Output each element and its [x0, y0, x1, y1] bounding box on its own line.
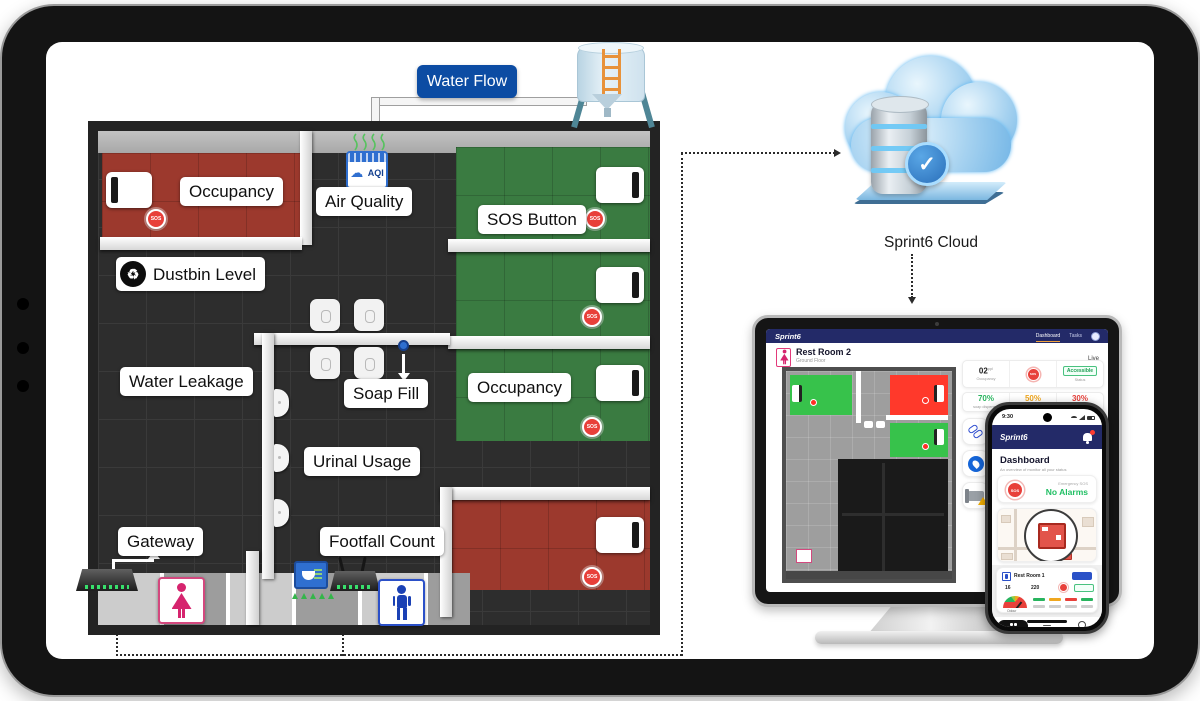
illustration-canvas: SOS Occupancy ☁ AQI Air Quality SOS Butt…	[0, 0, 1200, 701]
odour-gauge	[1003, 596, 1027, 608]
mini-toilet	[792, 385, 802, 402]
nav-dashboard[interactable]: Dashboard	[1036, 333, 1060, 342]
gateway-device-icon	[76, 569, 138, 589]
room-card-title: Rest Room 1	[1014, 573, 1045, 579]
status-time: 9:30	[1002, 414, 1013, 420]
phone-screen: 9:30 Sprint6 Dashboard An overview of mo…	[992, 409, 1102, 627]
mini-sink	[864, 421, 873, 428]
mini-dark-zone	[838, 459, 948, 575]
partition	[448, 336, 650, 349]
label-occupancy-women: Occupancy	[180, 177, 283, 206]
mini-wall	[856, 371, 861, 423]
stat-bar	[1049, 605, 1061, 608]
sink-icon	[354, 299, 384, 331]
restroom-floorplan: SOS Occupancy ☁ AQI Air Quality SOS Butt…	[88, 121, 660, 635]
mini-sos-dot	[922, 397, 929, 404]
stat-bar	[1065, 605, 1077, 608]
home-indicator[interactable]	[1027, 620, 1067, 623]
recycle-icon: ♻	[120, 261, 146, 287]
connector	[911, 254, 913, 298]
sink-icon	[310, 299, 340, 331]
partition	[100, 237, 302, 250]
label-air-quality: Air Quality	[316, 187, 412, 216]
page-subtitle: An overview of monitor all your status	[1000, 467, 1066, 472]
female-figure-icon	[170, 583, 194, 618]
sos-button-icon: SOS	[585, 209, 605, 229]
stat-bar	[1065, 598, 1077, 601]
mini-women-sign	[796, 549, 812, 563]
toilet-icon	[596, 517, 644, 553]
view-floor-button[interactable]	[1072, 572, 1092, 580]
toilet-icon	[106, 172, 152, 208]
male-figure-icon	[390, 585, 414, 620]
mini-sink	[876, 421, 885, 428]
check-badge-icon: ✓	[905, 142, 949, 186]
toilet-icon	[596, 167, 644, 203]
status-icons	[1071, 415, 1095, 420]
aqi-text: AQI	[368, 168, 384, 178]
tab-dashboard[interactable]	[998, 620, 1028, 627]
stats-card: 02ppl Occupancy SOS Accessible Status	[962, 360, 1104, 388]
avatar[interactable]	[1091, 332, 1100, 341]
label-gateway: Gateway	[118, 527, 203, 556]
grid-icon	[1010, 623, 1017, 628]
router-device-icon	[330, 571, 380, 589]
brand-logo: Sprint6	[1000, 433, 1028, 442]
water-flow-badge: Water Flow	[417, 65, 517, 98]
mobile-phone: 9:30 Sprint6 Dashboard An overview of mo…	[985, 402, 1109, 634]
room-stat-2: 220	[1031, 585, 1039, 591]
label-footfall-count: Footfall Count	[320, 527, 444, 556]
dashboard-nav: Dashboard Tasks	[1036, 333, 1082, 342]
sink-icon	[354, 347, 384, 379]
steam-icon	[350, 133, 390, 151]
notification-bell-icon[interactable]	[1083, 433, 1092, 441]
sos-icon[interactable]: SOS	[1006, 481, 1024, 499]
wall	[246, 551, 259, 625]
women-restroom-sign	[158, 577, 205, 624]
stat-bar	[1081, 605, 1093, 608]
label-water-leakage: Water Leakage	[120, 367, 253, 396]
water-pipe	[371, 97, 587, 106]
sprint6-cloud-icon: ✓	[845, 56, 1017, 234]
partition	[448, 239, 650, 252]
flush-sensor-icon	[294, 561, 328, 589]
emergency-card: SOS Emergency SOS No Alarms	[997, 475, 1097, 503]
mini-sos-dot	[922, 443, 929, 450]
room-title: Rest Room 2	[796, 347, 851, 357]
status-pill	[1074, 584, 1094, 592]
connector	[116, 654, 682, 656]
room-stat-1: 16	[1005, 585, 1011, 591]
gauge-label: Odour	[1007, 609, 1016, 613]
sink-counter-wall	[254, 333, 450, 345]
label-urinal-usage: Urinal Usage	[304, 447, 420, 476]
wifi-icon	[1071, 416, 1077, 420]
mini-toilet	[934, 429, 944, 445]
tablet-camera-dot	[17, 298, 29, 310]
arrow	[112, 559, 154, 562]
stat-bar	[1033, 605, 1045, 608]
webcam-icon	[935, 322, 939, 326]
sink-icon	[310, 347, 340, 379]
partition	[440, 487, 650, 500]
room-floor: Ground Floor	[796, 358, 825, 364]
mini-partition	[842, 513, 944, 516]
label-sos-button: SOS Button	[478, 205, 586, 234]
toilet-icon	[596, 365, 644, 401]
water-tank-icon	[574, 40, 652, 128]
tablet-camera-dot	[17, 380, 29, 392]
sos-button-icon: SOS	[582, 417, 602, 437]
stat-bar	[1033, 598, 1045, 601]
connector	[681, 153, 683, 656]
dashboard-header: Sprint6 Dashboard Tasks	[766, 329, 1108, 343]
mini-floorplan	[782, 367, 956, 583]
connector	[681, 152, 835, 154]
map-magnifier	[1024, 509, 1078, 562]
battery-icon	[1087, 416, 1095, 421]
phone-header: Sprint6	[992, 425, 1102, 449]
mini-toilet	[934, 385, 944, 402]
signal-icon	[1079, 415, 1085, 420]
camera-punch-hole	[1043, 413, 1052, 422]
emergency-label: Emergency SOS	[1058, 481, 1088, 486]
mini-sos-dot	[810, 399, 817, 406]
flow-arrows-icon	[292, 593, 334, 599]
mini-partition	[886, 415, 948, 420]
restroom-type-icon	[776, 348, 791, 367]
sos-dot-icon	[1059, 583, 1068, 592]
stat-bar	[1081, 598, 1093, 601]
sos-button-icon: SOS	[146, 209, 166, 229]
label-occupancy-men: Occupancy	[468, 373, 571, 402]
sos-status-icon: SOS	[1027, 368, 1040, 381]
label-soap-fill: Soap Fill	[344, 379, 428, 408]
tablet-camera-dot	[17, 342, 29, 354]
cloud-caption: Sprint6 Cloud	[845, 234, 1017, 252]
label-dustbin-level: ♻ Dustbin Level	[116, 257, 265, 291]
sos-button-icon: SOS	[582, 567, 602, 587]
stat-bar	[1049, 598, 1061, 601]
men-sign-icon	[1002, 572, 1011, 581]
mini-partition	[882, 463, 885, 571]
arrowhead-right-icon	[834, 149, 841, 157]
notification-badge	[1090, 430, 1095, 435]
arrow	[402, 354, 405, 374]
arrowhead-down-icon	[908, 297, 916, 304]
men-restroom-sign	[378, 579, 425, 626]
wall	[300, 131, 312, 245]
accessible-badge: Accessible	[1063, 366, 1097, 376]
mini-wall	[786, 571, 952, 579]
brand-logo: Sprint6	[775, 332, 801, 341]
wall	[262, 333, 274, 579]
map-card[interactable]	[997, 508, 1097, 562]
alarm-status: No Alarms	[1046, 487, 1088, 497]
profile-icon[interactable]	[1078, 621, 1086, 627]
soap-dispenser-icon	[398, 340, 409, 351]
sos-button-icon: SOS	[582, 307, 602, 327]
cloud-icon: ☁	[350, 166, 363, 179]
toilet-icon	[596, 267, 644, 303]
nav-tasks[interactable]: Tasks	[1069, 333, 1082, 342]
air-quality-sensor-icon: ☁ AQI	[346, 151, 388, 189]
room-card[interactable]: Rest Room 1 16 220 Odour	[996, 567, 1098, 613]
page-title: Dashboard	[1000, 455, 1050, 466]
